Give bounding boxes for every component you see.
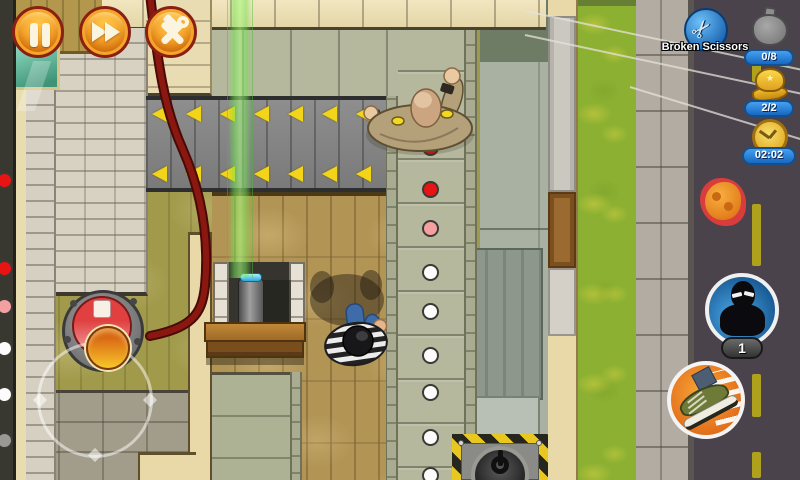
- fast-forward-icon: [105, 22, 120, 42]
- disguise-button[interactable]: [705, 273, 779, 347]
- wrench-head-icon: [177, 16, 189, 28]
- laser-beam: [227, 0, 253, 278]
- screw: [458, 440, 464, 446]
- bolt: [64, 336, 71, 343]
- fast-forward-button[interactable]: [79, 6, 131, 58]
- tools-button[interactable]: [145, 6, 197, 58]
- plant-spot: [712, 192, 721, 201]
- game-viewport: ✂ Broken Scissors 0/8 ★ 2/2 02:02 1: [0, 0, 800, 480]
- pause-icon: [42, 23, 50, 47]
- cap-star-icon: ★: [766, 73, 774, 84]
- security-guard: [350, 55, 480, 170]
- pause-icon: [30, 23, 38, 47]
- orange-plant-center: [705, 182, 741, 220]
- screw: [536, 440, 542, 446]
- player-robber: [295, 262, 405, 382]
- bolt: [134, 338, 141, 345]
- timer-value: 02:02: [742, 147, 796, 165]
- loot-counter: 0/8: [744, 49, 794, 66]
- plant-spot: [724, 202, 733, 211]
- loot-bag-icon: [752, 14, 788, 46]
- joystick-knob[interactable]: [86, 326, 130, 370]
- pause-button[interactable]: [12, 6, 64, 58]
- disguise-count-badge: 1: [721, 337, 763, 359]
- alarm-button-highlight: [93, 300, 111, 318]
- costume-counter: 2/2: [744, 100, 794, 117]
- bolt: [130, 298, 137, 305]
- sneak-run-button[interactable]: [667, 361, 745, 439]
- bolt: [70, 300, 77, 307]
- fan-hub-bar: [498, 450, 503, 466]
- robber-silhouette-icon: [720, 304, 765, 336]
